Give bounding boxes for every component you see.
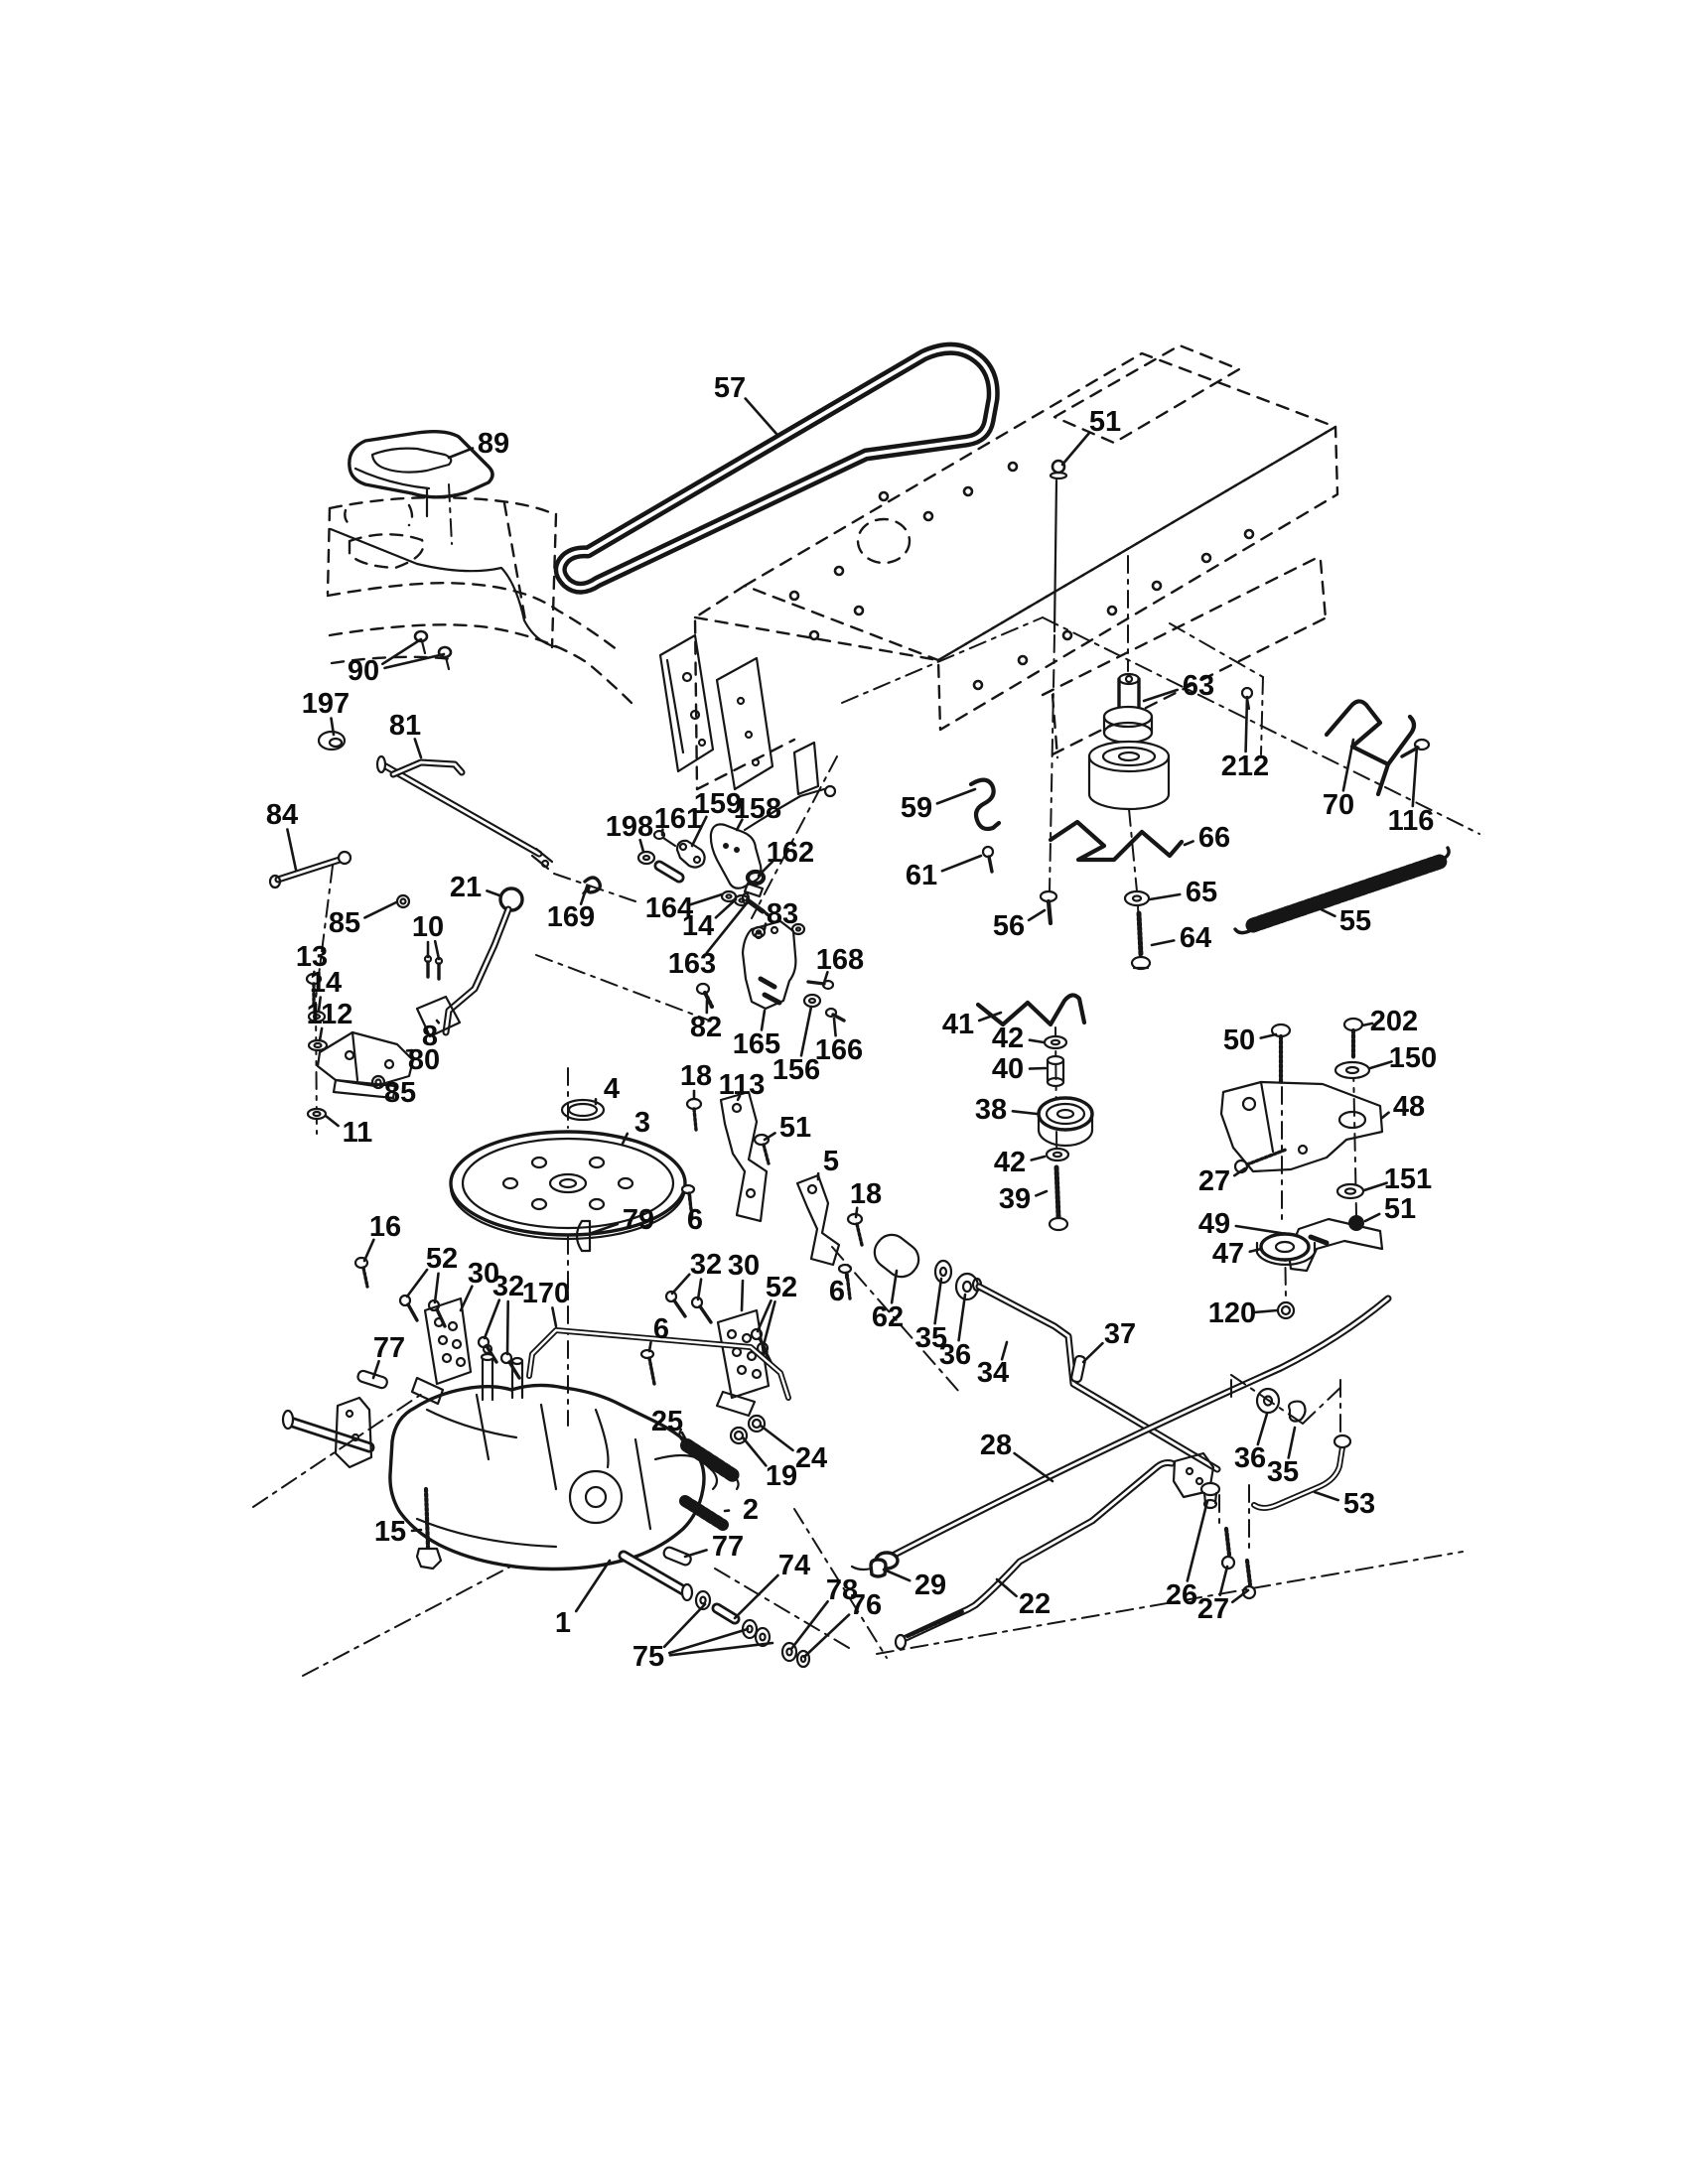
part-label-27: 27 xyxy=(1197,1593,1229,1625)
part-label-51: 51 xyxy=(1089,406,1121,438)
part-label-24: 24 xyxy=(795,1442,827,1474)
part-label-63: 63 xyxy=(1183,670,1214,702)
part-label-50: 50 xyxy=(1223,1024,1255,1056)
leader-line xyxy=(380,1084,382,1086)
part-label-36: 36 xyxy=(939,1339,971,1371)
diagram-page: 5789519019781632127011684596661198161159… xyxy=(0,0,1684,2184)
part-label-170: 170 xyxy=(522,1278,570,1309)
part-label-28: 28 xyxy=(980,1430,1012,1461)
leader-line xyxy=(942,856,981,871)
part-label-14: 14 xyxy=(310,967,342,999)
part-label-70: 70 xyxy=(1323,789,1354,821)
leader-line xyxy=(326,1116,339,1126)
leader-line xyxy=(552,1307,556,1326)
part-label-29: 29 xyxy=(914,1570,946,1601)
leader-line xyxy=(1250,1249,1261,1252)
part-label-64: 64 xyxy=(1180,922,1211,954)
part-label-56: 56 xyxy=(993,910,1025,942)
part-label-85: 85 xyxy=(384,1077,416,1109)
part-label-198: 198 xyxy=(606,811,653,843)
leader-line xyxy=(764,1301,775,1345)
leader-line xyxy=(407,1270,427,1297)
part-label-34: 34 xyxy=(977,1357,1009,1389)
part-label-81: 81 xyxy=(389,710,421,742)
leader-line xyxy=(649,1342,651,1351)
part-label-162: 162 xyxy=(767,837,814,869)
leader-line xyxy=(698,1280,701,1299)
part-label-116: 116 xyxy=(1388,805,1435,837)
leader-line xyxy=(1289,1428,1295,1458)
part-label-61: 61 xyxy=(906,860,937,891)
bracket-113 xyxy=(682,1092,769,1221)
part-label-27: 27 xyxy=(1198,1165,1230,1197)
leader-line xyxy=(1152,940,1174,945)
leader-line xyxy=(664,1604,705,1647)
part-label-36: 36 xyxy=(1234,1442,1266,1474)
leader-line xyxy=(1188,1501,1207,1581)
leader-line xyxy=(461,1287,472,1310)
leader-line xyxy=(415,739,421,757)
part-label-163: 163 xyxy=(668,948,716,980)
part-label-59: 59 xyxy=(901,792,932,824)
part-label-35: 35 xyxy=(1267,1456,1299,1488)
part-label-49: 49 xyxy=(1198,1208,1230,1240)
part-label-89: 89 xyxy=(478,428,509,460)
shift-linkage-cluster xyxy=(536,756,844,1021)
bolt-56 xyxy=(1041,891,1056,923)
part-label-38: 38 xyxy=(975,1094,1007,1126)
idler-roller-62 xyxy=(832,1228,1217,1469)
leader-line xyxy=(735,1575,778,1618)
part-label-77: 77 xyxy=(373,1332,405,1364)
part-label-5: 5 xyxy=(823,1146,839,1177)
part-label-40: 40 xyxy=(992,1053,1024,1085)
part-label-48: 48 xyxy=(1393,1091,1425,1123)
part-label-22: 22 xyxy=(1019,1588,1051,1620)
part-label-25: 25 xyxy=(651,1406,683,1437)
parts-diagram-svg: 5789519019781632127011684596661198161159… xyxy=(0,0,1684,2184)
leader-line xyxy=(507,1301,508,1354)
part-label-15: 15 xyxy=(374,1516,406,1548)
leader-line xyxy=(449,449,473,459)
part-label-169: 169 xyxy=(547,901,595,933)
part-label-82: 82 xyxy=(690,1012,722,1043)
leader-line xyxy=(1254,1310,1277,1312)
leader-line xyxy=(1062,433,1089,465)
leader-line xyxy=(884,1570,910,1580)
part-label-6: 6 xyxy=(829,1276,845,1307)
belt-keeper-66 xyxy=(1051,822,1182,860)
leader-line xyxy=(485,1300,499,1338)
leader-line xyxy=(762,1011,765,1029)
part-label-166: 166 xyxy=(815,1034,863,1066)
leader-line xyxy=(1246,697,1247,751)
part-label-168: 168 xyxy=(816,944,864,976)
part-label-47: 47 xyxy=(1212,1238,1244,1270)
leader-line xyxy=(761,1426,793,1450)
part-label-90: 90 xyxy=(348,655,379,687)
part-label-79: 79 xyxy=(623,1204,654,1236)
leader-line xyxy=(716,899,736,917)
part-label-37: 37 xyxy=(1104,1318,1136,1350)
callout-labels: 5789519019781632127011684596661198161159… xyxy=(266,372,1437,1673)
clip-59 xyxy=(971,780,999,829)
drive-belt xyxy=(560,348,993,588)
leader-line xyxy=(435,1274,439,1302)
leader-line xyxy=(1236,1226,1287,1234)
leader-line xyxy=(1382,1113,1389,1118)
bolt-64 xyxy=(1132,913,1150,969)
leader-line xyxy=(1013,1111,1037,1114)
leader-line xyxy=(1150,894,1180,899)
part-label-30: 30 xyxy=(728,1250,760,1282)
part-label-6: 6 xyxy=(687,1204,703,1236)
leader-line xyxy=(1029,910,1045,920)
leader-line xyxy=(1083,1343,1103,1362)
leader-line xyxy=(1036,1191,1047,1195)
part-label-32: 32 xyxy=(690,1249,722,1281)
part-label-75: 75 xyxy=(632,1641,664,1673)
part-label-202: 202 xyxy=(1370,1006,1418,1037)
part-label-151: 151 xyxy=(1384,1163,1432,1195)
leader-line xyxy=(364,902,396,917)
part-label-156: 156 xyxy=(772,1054,820,1086)
part-label-18: 18 xyxy=(680,1060,712,1092)
part-label-39: 39 xyxy=(999,1183,1031,1215)
washer-65 xyxy=(1125,891,1149,905)
leader-line xyxy=(487,890,499,895)
part-label-42: 42 xyxy=(994,1147,1026,1178)
leader-line xyxy=(1030,1068,1046,1069)
leader-line xyxy=(1032,1157,1045,1160)
chassis-frame xyxy=(660,345,1479,834)
part-label-212: 212 xyxy=(1221,751,1269,782)
part-label-51: 51 xyxy=(1384,1193,1416,1225)
leader-line xyxy=(672,1275,689,1294)
part-label-55: 55 xyxy=(1339,905,1371,937)
leader-line xyxy=(834,1019,836,1035)
part-label-11: 11 xyxy=(343,1117,373,1149)
part-label-3: 3 xyxy=(634,1107,650,1139)
part-label-84: 84 xyxy=(266,799,298,831)
part-label-80: 80 xyxy=(408,1044,440,1076)
part-label-113: 113 xyxy=(719,1069,766,1101)
part-label-14: 14 xyxy=(682,910,714,942)
part-label-42: 42 xyxy=(992,1023,1024,1054)
leader-line xyxy=(742,1281,743,1310)
part-label-18: 18 xyxy=(850,1178,882,1210)
part-label-41: 41 xyxy=(942,1009,974,1040)
part-label-32: 32 xyxy=(492,1271,524,1302)
part-label-2: 2 xyxy=(743,1494,759,1526)
part-label-62: 62 xyxy=(872,1301,904,1333)
part-label-120: 120 xyxy=(1208,1297,1256,1329)
part-label-6: 6 xyxy=(653,1313,669,1345)
part-label-53: 53 xyxy=(1343,1488,1375,1520)
part-label-52: 52 xyxy=(426,1243,458,1275)
leader-line xyxy=(746,399,776,435)
part-label-65: 65 xyxy=(1186,877,1217,908)
bolt-61 xyxy=(983,847,993,872)
part-label-112: 112 xyxy=(307,999,353,1030)
part-label-19: 19 xyxy=(766,1460,797,1492)
part-label-150: 150 xyxy=(1389,1042,1437,1074)
leader-line xyxy=(1365,1214,1379,1221)
leader-line xyxy=(804,1615,849,1657)
frame-holes xyxy=(790,463,1253,689)
leader-line xyxy=(1258,1414,1267,1444)
part-label-21: 21 xyxy=(450,872,482,903)
part-label-74: 74 xyxy=(778,1550,810,1581)
leader-line xyxy=(690,894,722,904)
leader-line xyxy=(1413,747,1417,806)
part-label-26: 26 xyxy=(1166,1579,1197,1611)
leader-line xyxy=(743,1437,766,1465)
part-label-57: 57 xyxy=(714,372,746,404)
leader-line xyxy=(791,1601,828,1649)
leader-line xyxy=(1315,1492,1338,1500)
leader-line xyxy=(435,941,439,959)
leader-line xyxy=(287,830,296,871)
part-label-10: 10 xyxy=(412,911,444,943)
leader-line xyxy=(997,1579,1017,1596)
part-label-85: 85 xyxy=(329,907,360,939)
leader-line xyxy=(1220,1567,1227,1595)
part-label-51: 51 xyxy=(779,1112,811,1144)
part-label-158: 158 xyxy=(734,793,781,825)
frame-bolt-51 xyxy=(1050,461,1066,891)
leader-line xyxy=(412,1530,421,1531)
part-label-16: 16 xyxy=(369,1211,401,1243)
keeper-70 xyxy=(1327,701,1414,794)
part-label-83: 83 xyxy=(767,898,798,930)
part-label-197: 197 xyxy=(302,688,350,720)
leader-line xyxy=(1261,1034,1276,1038)
leader-line xyxy=(1015,1453,1052,1481)
leader-line xyxy=(801,1007,811,1055)
part-label-76: 76 xyxy=(850,1589,882,1621)
leader-line xyxy=(959,1295,965,1340)
part-label-77: 77 xyxy=(712,1531,744,1563)
leader-line xyxy=(1030,1040,1044,1042)
leader-line xyxy=(937,789,975,803)
leader-line xyxy=(935,1279,941,1323)
leader-line xyxy=(1185,841,1193,845)
part-label-52: 52 xyxy=(766,1272,797,1303)
leader-line xyxy=(685,1550,707,1557)
part-label-4: 4 xyxy=(604,1073,620,1105)
part-label-1: 1 xyxy=(555,1607,571,1639)
part-label-66: 66 xyxy=(1198,822,1230,854)
leader-line xyxy=(1343,740,1353,790)
